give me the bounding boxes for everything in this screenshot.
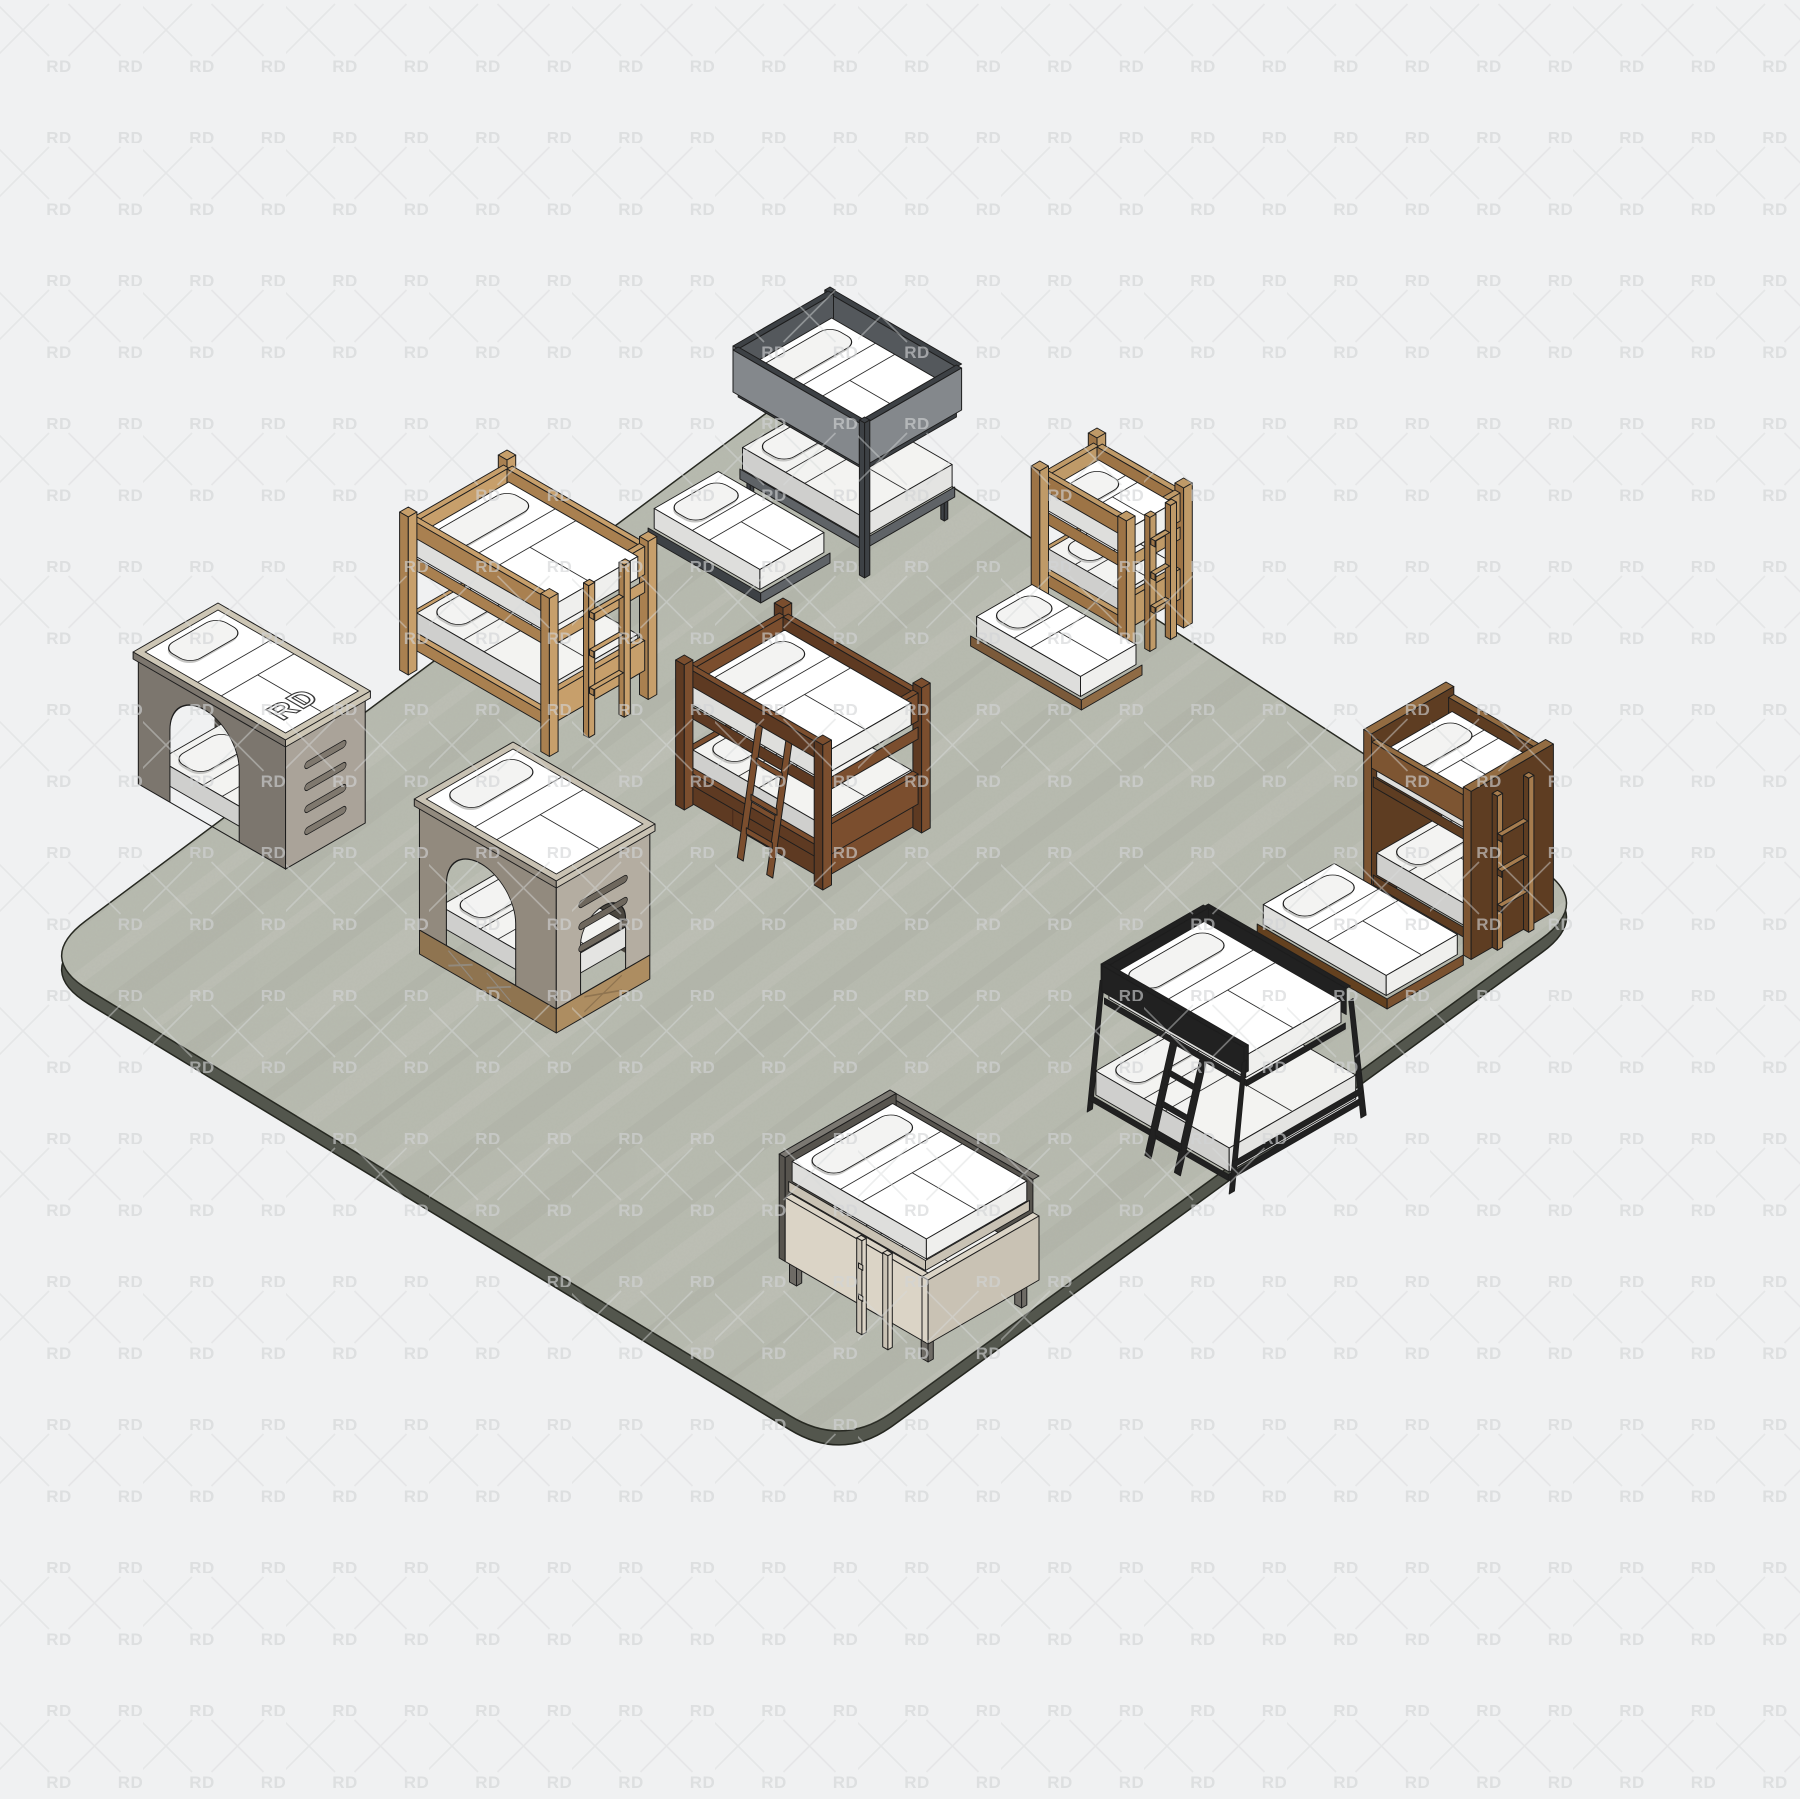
isometric-scene-svg: RDRDRDRDRD: [0, 0, 1800, 1799]
bunk-bed-collection-render: RDRDRDRDRD: [0, 0, 1800, 1799]
